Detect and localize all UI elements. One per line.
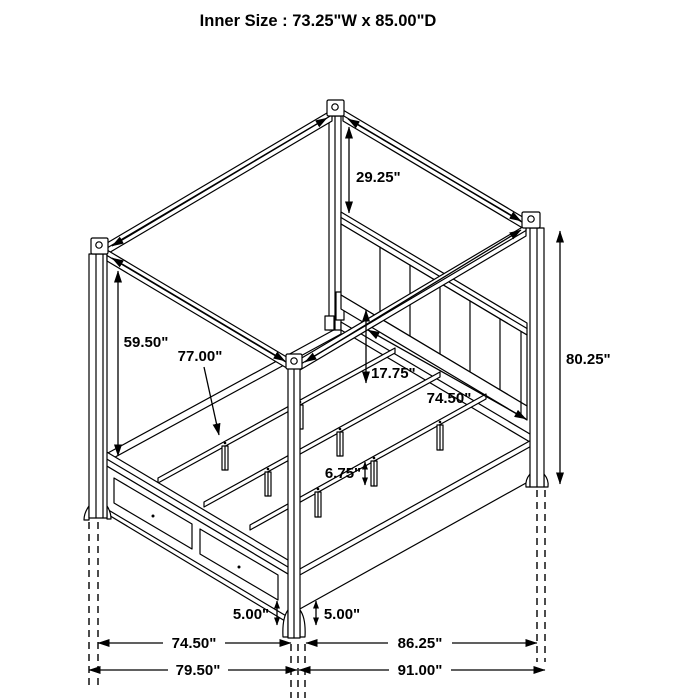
rail-bracket-small bbox=[325, 316, 334, 330]
dim-label-86-25: 86.25" bbox=[398, 635, 443, 652]
dim-label-5-00-right: 5.00" bbox=[324, 606, 360, 623]
dim-label-5-00-left: 5.00" bbox=[233, 606, 269, 623]
dim-label-59-50: 59.50" bbox=[124, 334, 169, 351]
bed-dimension-diagram: Inner Size : 73.25"W x 85.00"D 29.25" 59… bbox=[0, 0, 700, 700]
dim-label-17-75: 17.75" bbox=[371, 365, 416, 382]
dim-label-80-25: 80.25" bbox=[566, 351, 611, 368]
canopy-bed-drawing: Inner Size : 73.25"W x 85.00"D 29.25" 59… bbox=[0, 0, 700, 700]
dim-label-29-25: 29.25" bbox=[356, 169, 401, 186]
dim-label-77-00: 77.00" bbox=[178, 348, 223, 365]
page-title: Inner Size : 73.25"W x 85.00"D bbox=[200, 12, 437, 30]
dim-label-74-50-bottom: 74.50" bbox=[172, 635, 217, 652]
dim-label-79-50: 79.50" bbox=[176, 662, 221, 679]
dim-label-91-00: 91.00" bbox=[398, 662, 443, 679]
dim-label-74-50-deck: 74.50" bbox=[427, 390, 472, 407]
dim-label-6-75: 6.75" bbox=[325, 465, 361, 482]
